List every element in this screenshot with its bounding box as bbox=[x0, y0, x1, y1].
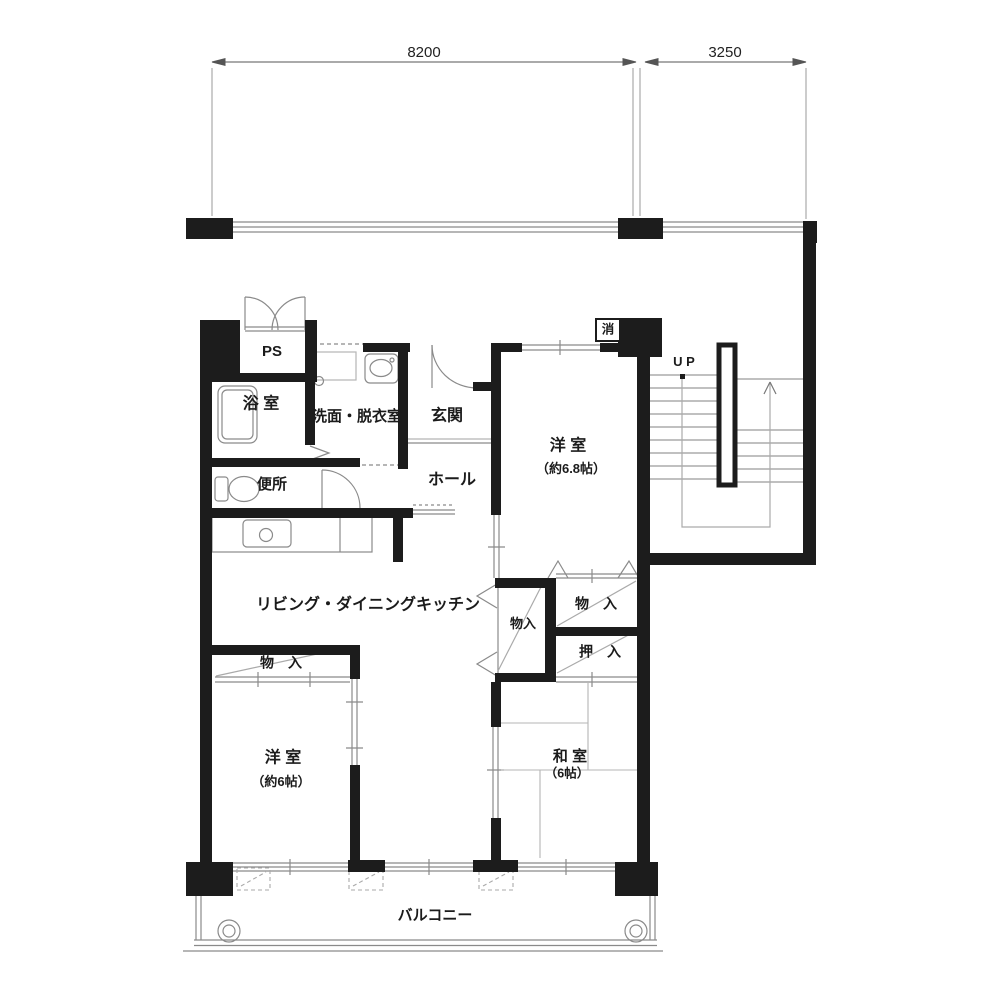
kitchen-counter bbox=[212, 517, 372, 552]
floor-plan: 8200 3250 PS 浴 室 洗面・脱衣室 便所 玄関 ホール 洋 室 （約… bbox=[0, 0, 1000, 1000]
room-label-entrance: 玄関 bbox=[431, 409, 463, 426]
room-label-ldk: リビング・ダイニングキッチン bbox=[256, 598, 480, 615]
balcony-drain-right bbox=[625, 920, 647, 942]
ldk-top-wall bbox=[200, 508, 413, 518]
toilet-door-arc bbox=[322, 470, 360, 508]
bathtub bbox=[218, 386, 257, 443]
room-size-western2: （約6帖） bbox=[251, 775, 310, 789]
stairs-up-label: U P bbox=[673, 355, 695, 369]
pillar-top-left bbox=[186, 218, 233, 239]
room-label-western2: 洋 室 bbox=[265, 751, 301, 768]
ps-left-wall bbox=[200, 320, 240, 377]
pillar-bottom-left bbox=[186, 862, 233, 896]
balcony-drain-left bbox=[218, 920, 240, 942]
kitchen-sink bbox=[243, 520, 291, 547]
fixtures bbox=[212, 297, 647, 942]
bath-door bbox=[310, 446, 329, 460]
room-label-bathroom: 浴 室 bbox=[243, 397, 279, 414]
closet-upper-door bbox=[548, 561, 568, 578]
entrance-door-arc bbox=[432, 345, 477, 388]
room-label-balcony: バルコニー bbox=[398, 908, 473, 924]
room-label-washroom: 洗面・脱衣室 bbox=[312, 409, 402, 425]
closet-center-label: 物入 bbox=[510, 617, 536, 631]
closet-west2-label: 物 入 bbox=[260, 656, 302, 671]
room-label-western1: 洋 室 bbox=[550, 439, 586, 456]
fire-extinguisher-label: 消 bbox=[602, 323, 615, 336]
toilet-fixture bbox=[215, 477, 228, 501]
walls bbox=[186, 218, 817, 896]
room-size-japanese: （6帖） bbox=[545, 767, 589, 780]
pillar-top-mid bbox=[618, 218, 663, 239]
room-size-western1: （約6.8帖） bbox=[536, 462, 606, 476]
dimension-stair: 3250 bbox=[708, 45, 741, 61]
floor-plan-drawing bbox=[0, 0, 1000, 1000]
left-wall bbox=[200, 377, 212, 862]
up-start-dot bbox=[680, 374, 685, 379]
room-label-ps: PS bbox=[262, 344, 282, 360]
dimension-lines bbox=[212, 59, 806, 219]
room-label-hall: ホール bbox=[428, 473, 476, 490]
dimension-main: 8200 bbox=[407, 45, 440, 61]
closet-upper-label: 物 入 bbox=[575, 597, 617, 612]
room-label-toilet: 便所 bbox=[257, 477, 287, 493]
washer-pan bbox=[314, 352, 356, 380]
stair-right-wall bbox=[803, 221, 816, 565]
ps-door-arc-left bbox=[245, 297, 278, 330]
stair-handrail bbox=[719, 345, 735, 485]
pillar-bottom-right bbox=[615, 862, 658, 896]
ps-door-arc-right bbox=[272, 297, 305, 330]
oshiire-label: 押 入 bbox=[579, 645, 621, 660]
room-label-japanese: 和 室 bbox=[553, 749, 587, 765]
unit-right-wall bbox=[637, 355, 650, 868]
stair-bottom-wall bbox=[643, 553, 816, 565]
pillar-unit-topright bbox=[618, 318, 662, 357]
